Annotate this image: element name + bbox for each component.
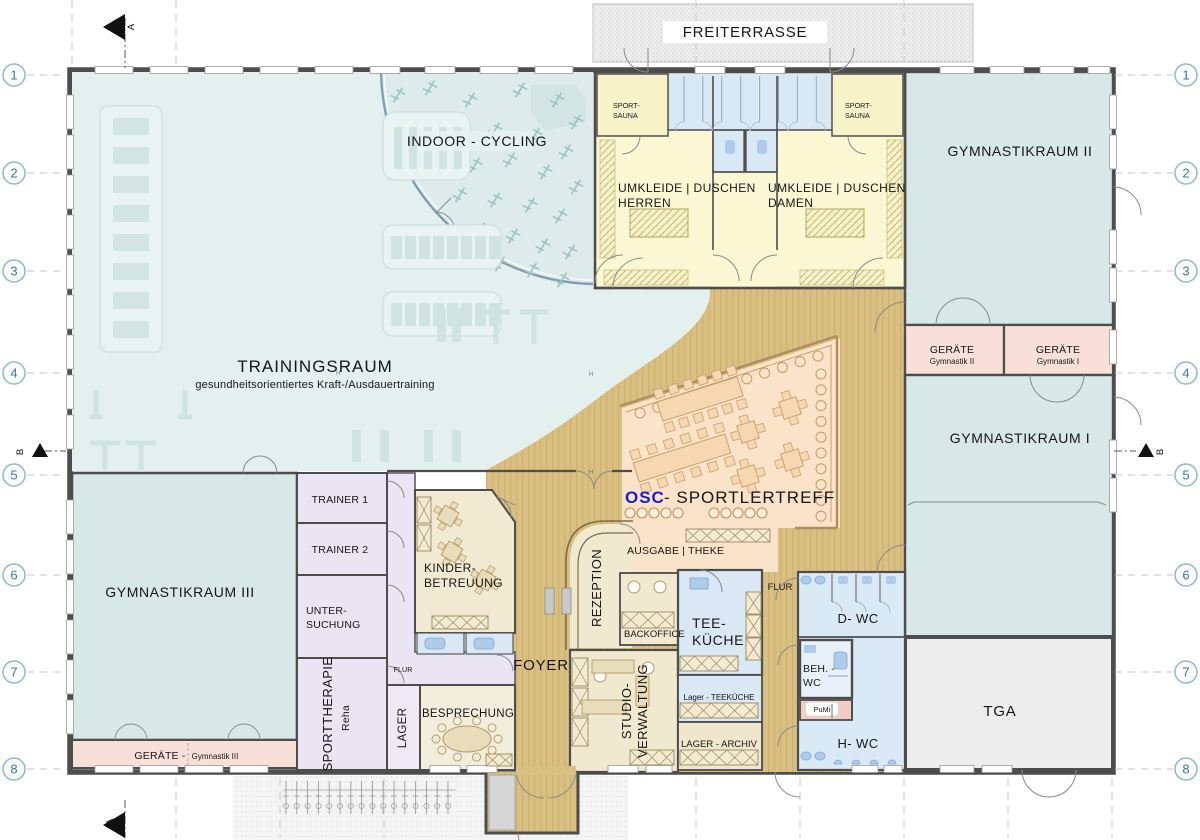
chair-square [783,443,793,453]
chair-square [773,407,783,417]
storage-xbox [680,656,738,671]
floor-bar [424,430,433,462]
toilet [757,140,767,154]
chair-square [731,431,741,441]
section-b-letter-left: B [15,449,26,455]
window-segment [370,67,400,74]
window-segment [67,215,74,249]
window-segment [230,766,268,773]
window-segment [940,67,974,74]
label-umkleide-d-2: DAMEN [768,196,813,210]
equipment-plate [113,147,149,164]
window-segment [67,375,74,409]
bar-stool [649,508,659,518]
sink [801,576,811,584]
chair-round [816,385,826,395]
window-segment [67,335,74,369]
chair-round [816,401,826,411]
accessible-toilet [834,652,847,669]
label-geraete3-1: GERÄTE - [134,750,185,762]
storage-xbox [572,658,588,686]
window-segment [982,766,1012,773]
label-pumi: PuMi [814,705,831,714]
bench-damen [887,140,902,258]
window-segment [205,67,243,74]
meeting-chair [473,753,481,761]
chair-round [813,351,823,361]
label-teekueche-1: TEE- [692,615,726,631]
label-flur-left: FLUR [394,665,413,674]
label-tga: TGA [983,703,1016,720]
chair-square [791,467,801,477]
label-geraete2-1: GERÄTE [930,344,974,356]
sink [815,752,825,760]
meeting-chair [453,753,461,761]
label-sauna-left-2: SAUNA [613,111,638,120]
chair-round [816,416,826,426]
grid-number-left-1: 1 [10,68,17,83]
section-a-letter-bottom: A [105,818,116,825]
grid-number-right-1: 1 [1182,68,1189,83]
wc-cistern [862,576,872,584]
machine-seat [405,303,416,326]
equipment-plate [113,263,149,280]
grid-number-left-6: 6 [10,568,17,583]
label-ausgabe: AUSGABE | THEKE [627,545,724,557]
foyer-door-post-1 [545,588,554,614]
window-segment [467,766,497,773]
window-segment [67,660,74,694]
window-segment [67,295,74,329]
label-sporttherapie: SPORTTHERAPIE [320,657,335,772]
chair-square [731,475,741,485]
sink [801,752,811,760]
label-umkleide-h-2: HERREN [618,196,671,210]
beh-sink [804,645,816,653]
label-geraete1-2: Gymnastik I [1037,357,1079,366]
label-besprechung: BESPRECHUNG [422,708,514,720]
grid-number-right-3: 3 [1182,264,1189,279]
storage-xbox [572,718,588,746]
chair-square [781,391,791,401]
window-segment [430,766,460,773]
label-gym1: GYMNASTIKRAUM I [950,430,1090,446]
machine-seat [405,236,416,259]
locker-damen [806,209,864,237]
desk-chair [628,581,640,593]
doors-gym-east [1113,187,1141,425]
sink [815,576,825,584]
window-segment [535,67,573,74]
chair-square [799,451,809,461]
section-b-flag-right [1138,443,1154,457]
grid-number-left-8: 8 [10,762,17,777]
chair-square [789,415,799,425]
room-gymnastik-1 [905,375,1113,637]
equipment-plate [113,205,149,222]
window-segment [608,766,638,773]
machine-seat [489,236,500,259]
label-osc-rest: - SPORTLERTREFF [664,488,835,507]
label-foyer: FOYER [513,657,569,674]
xbox-rect [686,529,770,542]
label-geraete3-2: Gymnastik III [192,752,239,761]
storage-xbox [432,616,488,629]
meeting-chair [494,735,502,743]
window-segment [1110,330,1117,364]
window-segment [67,135,74,169]
floor-bar [352,430,361,462]
machine-seat [391,236,402,259]
label-kinder-1: KINDER- [424,561,476,575]
window-segment [1110,135,1117,169]
meeting-chair [488,746,496,754]
chair-round [795,357,805,367]
foyer-door-post-2 [562,588,571,614]
bar-stool [745,508,755,518]
label-lager: LAGER [397,708,409,749]
chair-square [755,467,765,477]
window-segment [646,766,672,773]
window-segment [1110,268,1117,302]
floor-bar [380,430,389,462]
shower-area [668,74,832,130]
window-segment [67,540,74,574]
xbox-rect [486,754,512,766]
equipment-plate [113,321,149,338]
room-gymnastik-2 [905,72,1113,325]
label-kinder-2: BETREUUNG [424,576,503,590]
storage-xbox [680,750,758,765]
window-segment [315,67,353,74]
grid-number-right-5: 5 [1182,468,1189,483]
bar-stool [733,508,743,518]
chair-round [777,362,787,372]
grid-number-left-4: 4 [10,366,17,381]
equipment-plate [113,176,149,193]
heater-mark-1: H [589,372,593,378]
window-segment [67,255,74,289]
wc-cistern [838,576,848,584]
heater-mark-2: H [589,470,593,476]
storage-xbox [686,529,770,542]
label-geraete2-2: Gymnastik II [930,357,974,366]
window-segment [67,95,74,129]
label-trainingsraum-sub: gesundheitsorientiertes Kraft-/Ausdauert… [195,379,434,391]
window-segment [884,766,902,773]
chair-round [816,369,826,379]
window-segment [755,67,785,74]
label-sauna-left-1: SPORT- [613,101,640,110]
section-b-flag-left [32,443,48,457]
grid-number-right-7: 7 [1182,665,1189,680]
label-lager-archiv: LAGER - ARCHIV [681,739,758,750]
label-teekueche-2: KÜCHE [692,631,744,648]
machine-seat [419,236,430,259]
machine-seat [419,303,430,326]
storage-xbox [486,754,512,766]
bench-herren-2 [604,270,688,285]
locker-herren [630,209,688,237]
bar-stool [625,508,635,518]
vestibule-mat [489,775,515,830]
grid-number-right-2: 2 [1182,166,1189,181]
desk [592,660,634,673]
machine-seat [447,236,458,259]
window-segment [940,766,974,773]
chair-square [739,415,749,425]
section-a-letter-top: A [126,23,137,30]
machine-bar [394,127,402,169]
label-gym3: GYMNASTIKRAUM III [105,584,254,600]
kinder-tub [425,638,445,649]
window-segment [1110,95,1117,129]
section-a-flag-top [103,14,125,40]
kitchen-sink [690,578,708,589]
window-segment [480,67,518,74]
equipment-plate [113,118,149,135]
equipment-shelf [100,106,162,352]
machine-seat [461,236,472,259]
bar-stool [637,508,647,518]
chair-round [742,374,752,384]
label-sauna-right-1: SPORT- [845,101,872,110]
window-segment [67,415,74,449]
grid-number-right-4: 4 [1182,366,1189,381]
chair-square [747,439,757,449]
window-segment [95,766,133,773]
machine-seat [391,303,402,326]
bench-herren [600,140,615,258]
storage-xbox [746,615,761,637]
window-segment [425,67,455,74]
meeting-chair [432,735,440,743]
label-flur-right: FLUR [768,582,793,593]
chair-round [635,408,645,418]
label-lager-teekueche: Lager - TEEKÜCHE [684,693,755,702]
label-studio-1: STUDIO- [619,683,634,739]
window-segment [67,700,74,734]
window-segment [67,500,74,534]
storage-xbox [746,638,761,660]
label-trainer2: TRAINER 2 [312,544,369,556]
chair-round [816,464,826,474]
storage-xbox [680,703,758,718]
storage-xbox [622,612,674,628]
heater-mark-3: H [336,371,340,377]
toilet [725,140,735,154]
chair-round [816,448,826,458]
label-sauna-right-2: SAUNA [845,111,870,120]
label-umkleide-d-1: UMKLEIDE | DUSCHEN [768,181,906,195]
window-segment [695,67,725,74]
bench-damen-2 [800,270,884,285]
window-segment [1110,230,1117,264]
door-corridor-exit [775,772,800,797]
label-backoffice: BACKOFFICE [624,629,685,640]
chair-square [739,459,749,469]
chair-round [816,432,826,442]
window-segment [67,580,74,614]
window-segment [95,67,133,74]
window-segment [990,67,1024,74]
section-b-letter-right: B [1155,449,1166,455]
meeting-chair [438,724,446,732]
meeting-table [443,726,491,752]
grid-number-right-6: 6 [1182,568,1189,583]
label-trainer1: TRAINER 1 [312,494,369,506]
meeting-chair [488,724,496,732]
label-geraete1-1: GERÄTE [1036,344,1080,356]
label-rezeption: REZEPTION [589,549,604,627]
window-segment [150,67,188,74]
wc-cistern [886,576,896,584]
label-osc-brand: OSC [625,488,665,507]
floor-bar [452,430,461,462]
window-segment [1088,67,1110,74]
label-trainingsraum: TRAININGSRAUM [237,357,393,376]
window-segment [67,175,74,209]
label-studio-2: VERWALTUNG [635,664,650,758]
floor-plan-drawing: FREITERRASSE [0,0,1200,840]
label-behwc-1: BEH. - [803,663,835,675]
xbox-rect [680,656,738,671]
equipment-plate [113,234,149,251]
grid-number-left-3: 3 [10,264,17,279]
xbox-rect [432,616,488,629]
label-behwc-2: WC [803,677,821,689]
window-segment [1110,478,1117,512]
meeting-chair [438,746,446,754]
grid-number-right-8: 8 [1182,762,1189,777]
desk-chair [654,581,666,593]
bar-stool [661,508,671,518]
machine-seat [433,236,444,259]
bar-stool [673,508,683,518]
window-segment [260,67,298,74]
bar-stool [709,508,719,518]
grid-number-left-5: 5 [10,468,17,483]
kinder-tub [474,638,494,649]
bar-rack [437,308,446,342]
grid-number-left-2: 2 [10,166,17,181]
chair-square [755,423,765,433]
storage-xbox [746,592,761,614]
grid-number-left-7: 7 [10,665,17,680]
label-dwc: D- WC [838,611,879,626]
machine-seat [475,236,486,259]
storage-xbox [417,497,431,523]
vestibule-opening [516,766,576,775]
chair-square [775,459,785,469]
room-gymnastik-3 [72,473,297,740]
chair-round [816,511,826,521]
equipment-plate [113,292,149,309]
terrace-label: FREITERRASSE [683,24,808,41]
bar-stool [721,508,731,518]
label-untersuchung-1: UNTER- [306,605,347,617]
rooms [72,72,1113,833]
window-segment [1040,67,1074,74]
label-umkleide-h-1: UMKLEIDE | DUSCHEN [618,181,756,195]
label-gym2: GYMNASTIKRAUM II [948,143,1093,159]
bar-rack [452,308,461,342]
label-hwc: H- WC [838,736,879,751]
chair-round [760,368,770,378]
window-segment [1110,440,1117,474]
label-untersuchung-2: SUCHUNG [306,619,361,631]
machine-seat [461,303,472,326]
bar-stool [757,508,767,518]
floor-plan-page: FREITERRASSE [0,0,1200,840]
chair-square [797,399,807,409]
window-segment [140,766,178,773]
label-indoor-cycling: INDOOR - CYCLING [407,133,547,149]
storage-xbox [417,525,431,551]
label-reha: Reha [340,705,352,731]
window-segment [185,766,223,773]
window-segment [852,766,878,773]
window-segment [67,620,74,654]
